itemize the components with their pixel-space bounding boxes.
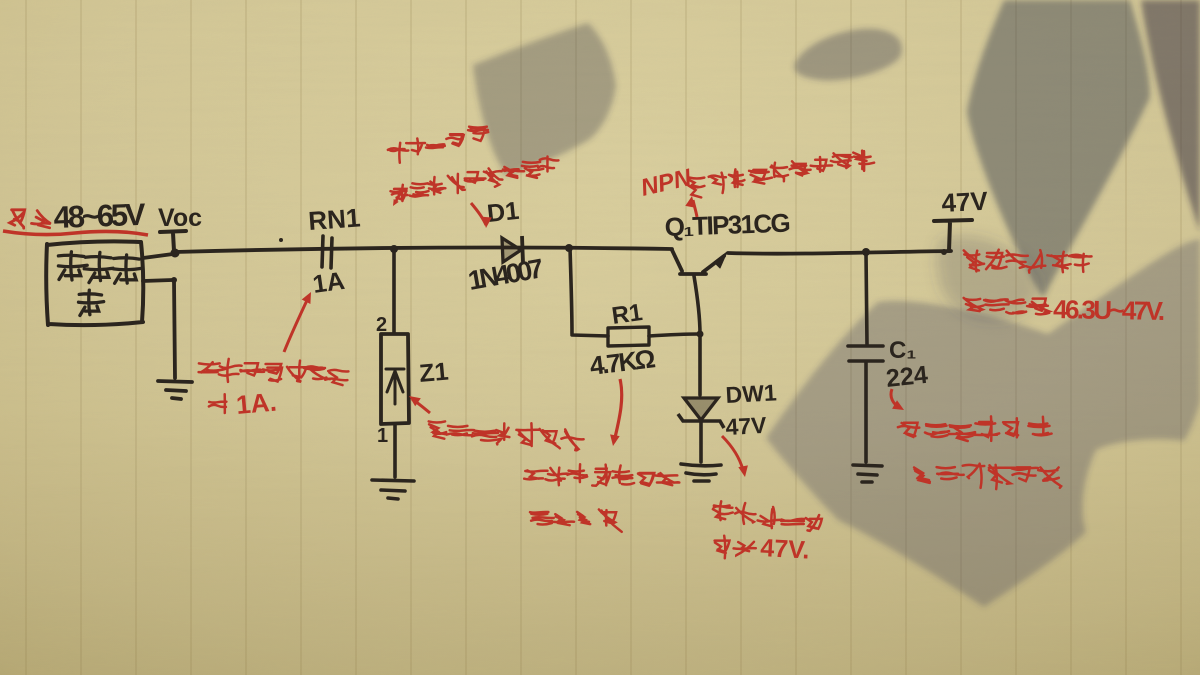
svg-text:RN1: RN1 xyxy=(307,202,361,236)
svg-text:DW1: DW1 xyxy=(725,379,778,408)
svg-text:R1: R1 xyxy=(610,299,644,330)
svg-text:Z1: Z1 xyxy=(418,358,450,388)
svg-text:46.3U~47V.: 46.3U~47V. xyxy=(1053,294,1166,326)
svg-text:D1: D1 xyxy=(486,197,521,228)
svg-text:C₁: C₁ xyxy=(889,337,916,364)
svg-text:1A.: 1A. xyxy=(235,387,278,420)
svg-text:47V: 47V xyxy=(941,186,989,218)
svg-text:224: 224 xyxy=(885,361,930,393)
svg-text:1: 1 xyxy=(377,425,388,447)
svg-text:1A: 1A xyxy=(311,267,347,299)
svg-text:47V: 47V xyxy=(725,412,768,440)
svg-text:Q₁TIP31CG: Q₁TIP31CG xyxy=(664,208,791,242)
svg-text:Voc: Voc xyxy=(158,204,202,232)
svg-text:2: 2 xyxy=(376,314,387,336)
svg-text:48~65V: 48~65V xyxy=(53,197,146,235)
svg-text:47V.: 47V. xyxy=(760,534,811,565)
